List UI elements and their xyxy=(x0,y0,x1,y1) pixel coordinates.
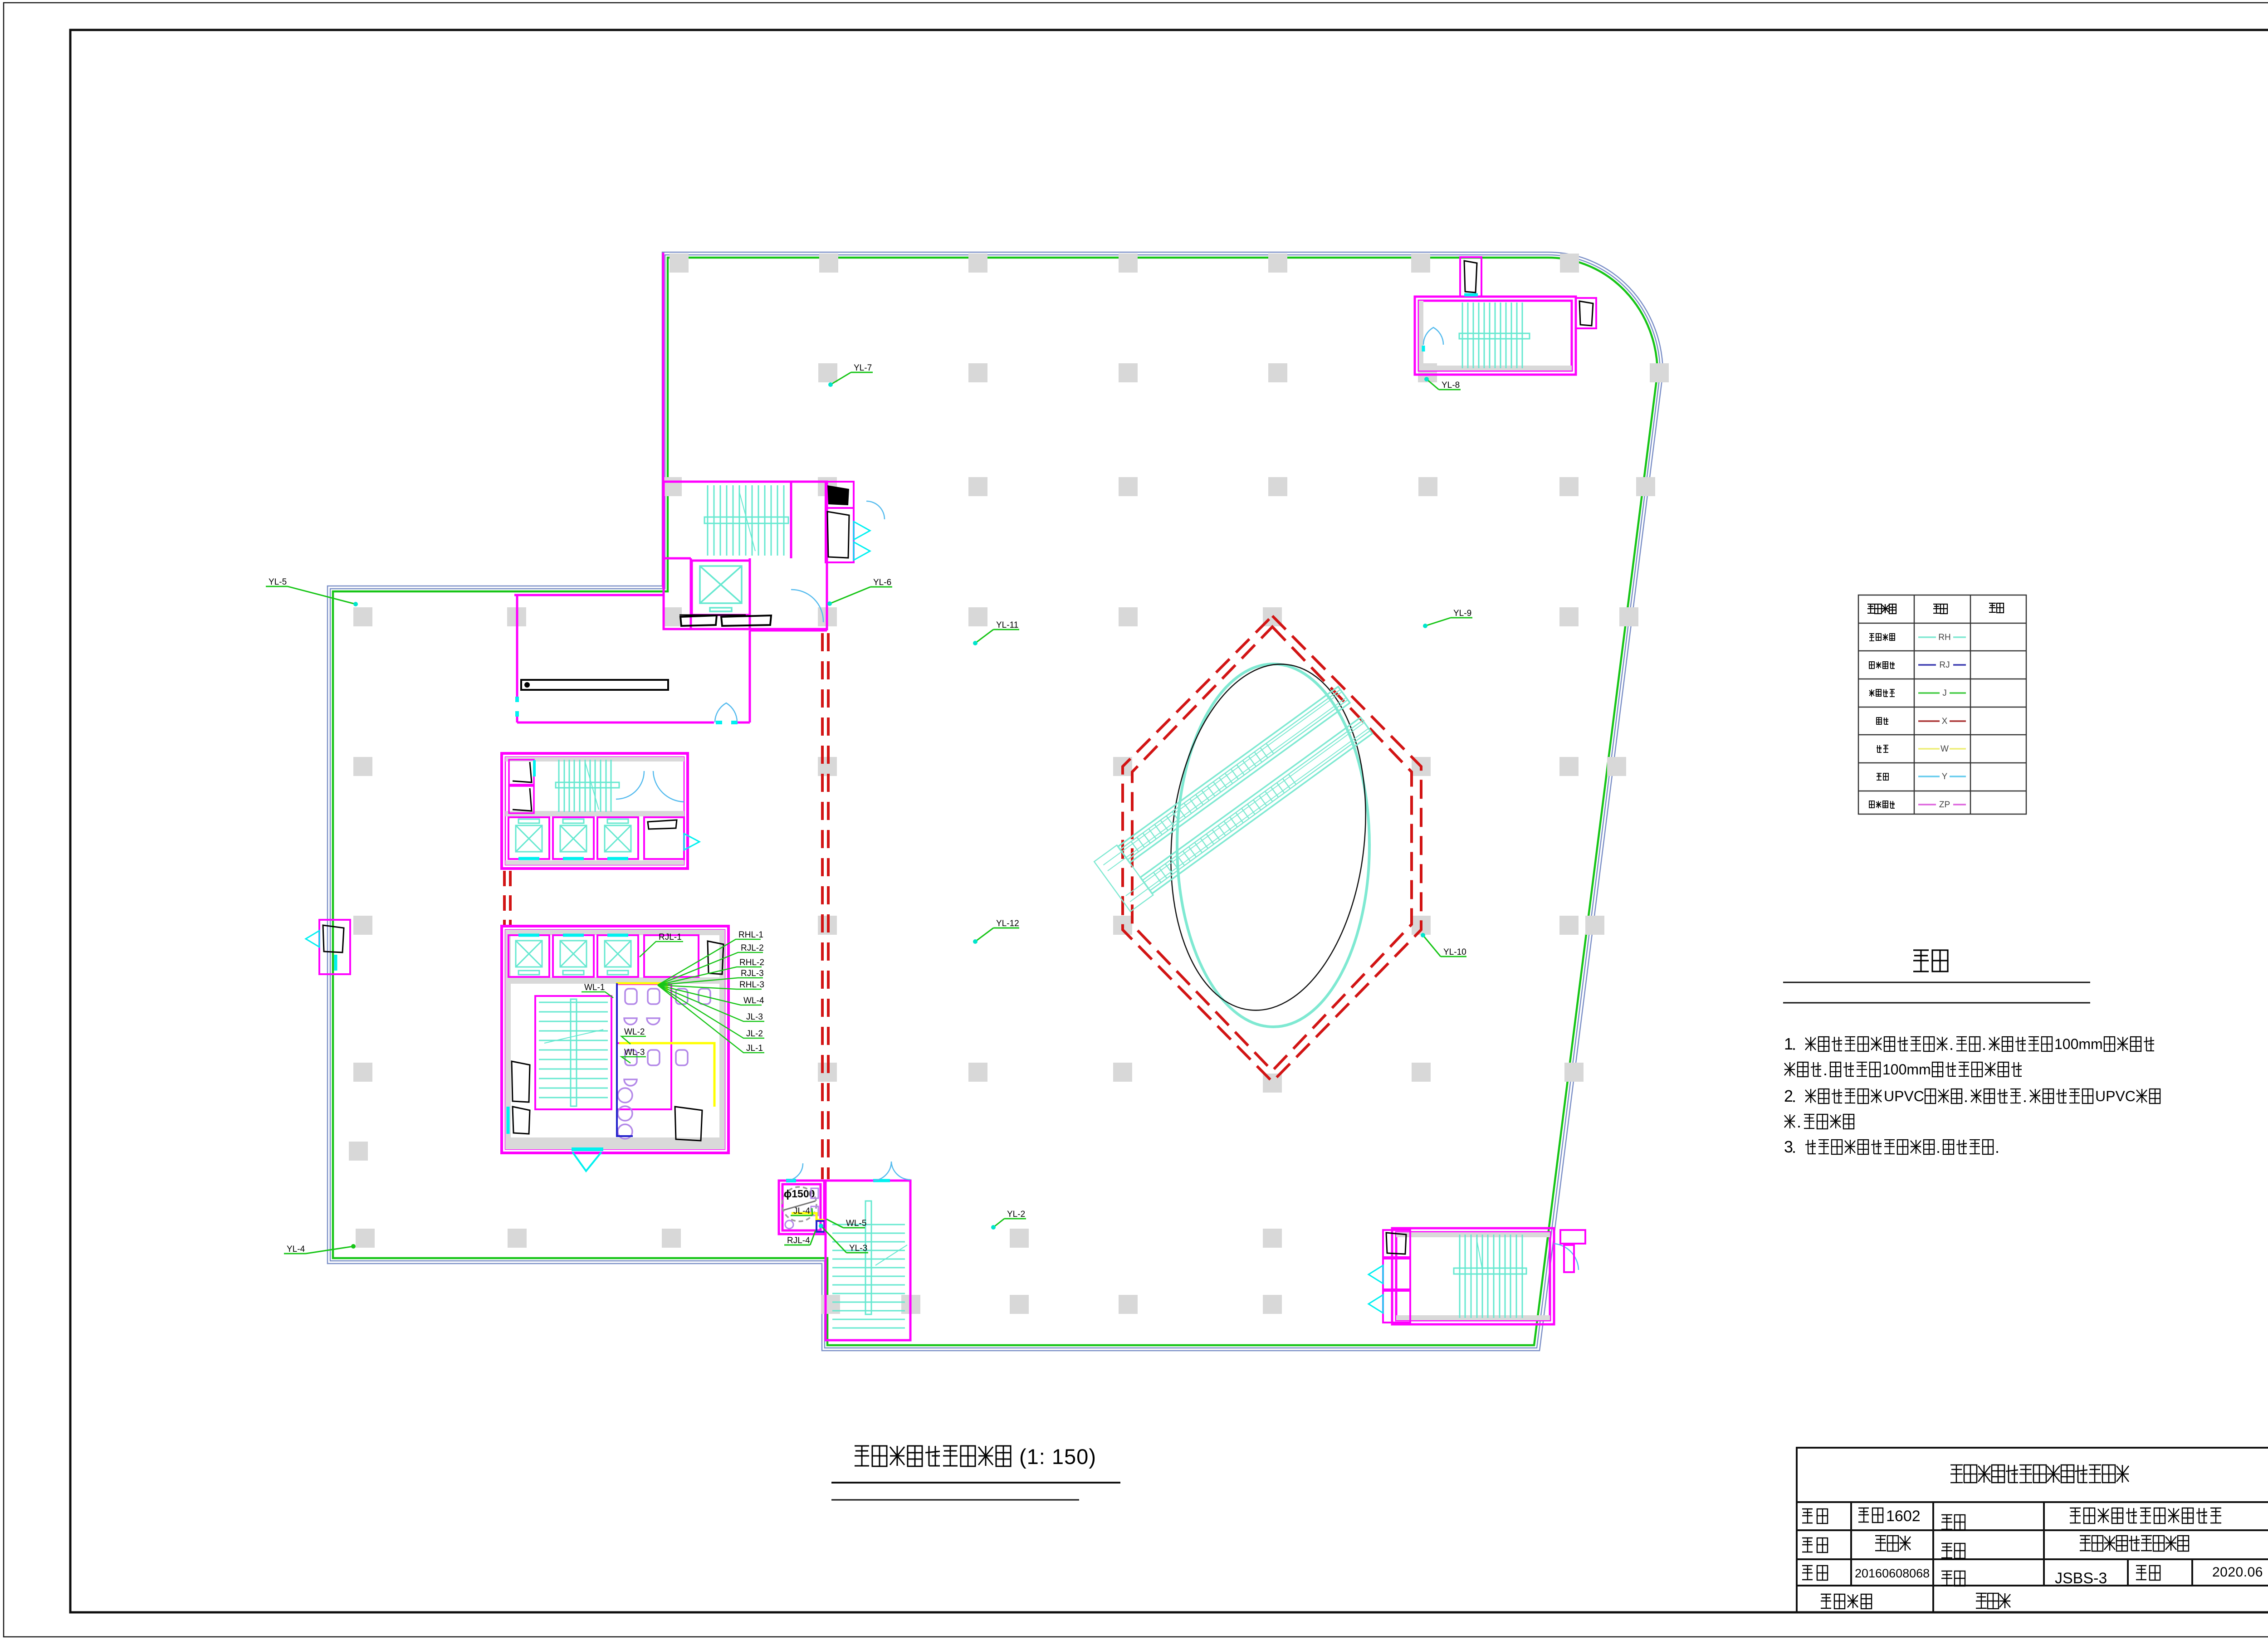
svg-text:RJL-3: RJL-3 xyxy=(741,969,764,978)
svg-text:(1: 150): (1: 150) xyxy=(1019,1445,1096,1469)
svg-text:YL-7: YL-7 xyxy=(854,363,872,373)
svg-text:RHL-1: RHL-1 xyxy=(738,930,763,940)
svg-text:YL-9: YL-9 xyxy=(1453,609,1471,618)
svg-text:J: J xyxy=(1942,688,1947,698)
svg-text:RJ: RJ xyxy=(1939,660,1950,670)
svg-text:YL-4: YL-4 xyxy=(287,1245,305,1254)
svg-text:JL-3: JL-3 xyxy=(746,1012,763,1022)
svg-text:WL-4: WL-4 xyxy=(743,996,764,1005)
svg-text:ZP: ZP xyxy=(1939,800,1950,810)
svg-text:YL-2: YL-2 xyxy=(1007,1210,1025,1219)
svg-text:W: W xyxy=(1941,744,1949,754)
svg-text:YL-10: YL-10 xyxy=(1443,947,1466,957)
svg-text:JL-2: JL-2 xyxy=(746,1029,763,1039)
svg-text:3: 3 xyxy=(1784,1137,1793,1156)
svg-text:RJL-2: RJL-2 xyxy=(741,943,764,953)
svg-text:RHL-3: RHL-3 xyxy=(739,980,764,990)
svg-text:JL-4: JL-4 xyxy=(793,1206,810,1216)
svg-text:YL-11: YL-11 xyxy=(996,620,1018,630)
svg-text:JL-1: JL-1 xyxy=(746,1044,763,1053)
svg-text:20160608068: 20160608068 xyxy=(1855,1567,1930,1580)
svg-text:RHL-2: RHL-2 xyxy=(739,958,764,967)
svg-text:X: X xyxy=(1942,717,1948,726)
svg-text:UPVC: UPVC xyxy=(2095,1088,2136,1104)
svg-text:WL-3: WL-3 xyxy=(624,1048,645,1057)
svg-text:RJL-4: RJL-4 xyxy=(787,1236,810,1245)
svg-text:YL-3: YL-3 xyxy=(849,1244,867,1253)
svg-text:1: 1 xyxy=(1784,1035,1793,1053)
svg-text:YL-12: YL-12 xyxy=(996,919,1019,928)
svg-text:ɸ1500: ɸ1500 xyxy=(784,1188,815,1200)
svg-text:Y: Y xyxy=(1942,772,1948,781)
svg-text:WL-1: WL-1 xyxy=(584,983,605,992)
svg-text:RH: RH xyxy=(1938,633,1950,642)
svg-text:YL-5: YL-5 xyxy=(269,577,287,587)
svg-text:WL-2: WL-2 xyxy=(624,1027,645,1037)
svg-text:100mm: 100mm xyxy=(2054,1036,2103,1052)
svg-text:RJL-1: RJL-1 xyxy=(659,932,682,942)
svg-text:JSBS-3: JSBS-3 xyxy=(2055,1570,2107,1587)
svg-text:1602: 1602 xyxy=(1886,1508,1921,1525)
svg-text:100mm: 100mm xyxy=(1882,1061,1931,1078)
svg-text:2020.06: 2020.06 xyxy=(2212,1565,2263,1580)
svg-text:YL-8: YL-8 xyxy=(1442,381,1460,390)
svg-text:WL-5: WL-5 xyxy=(846,1219,866,1228)
svg-text:YL-6: YL-6 xyxy=(873,578,891,587)
svg-text:2: 2 xyxy=(1784,1087,1793,1105)
svg-text:UPVC: UPVC xyxy=(1884,1088,1924,1104)
